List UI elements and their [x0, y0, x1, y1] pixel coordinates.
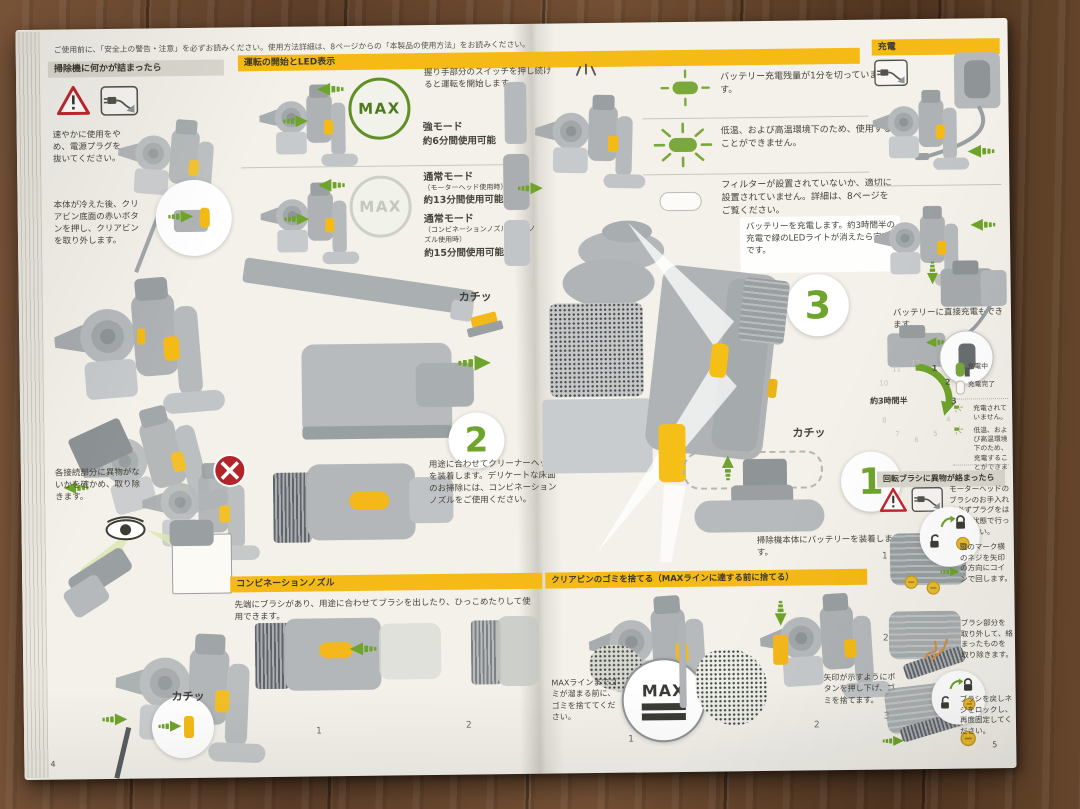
- nozzle-partial: [504, 220, 531, 266]
- legend-separator: [952, 398, 1008, 400]
- nozzle-slider-yellow: [349, 492, 389, 510]
- battery-clip2: [899, 325, 925, 338]
- figure-number: 1: [316, 726, 322, 736]
- charge-time-label: 約3時間半: [870, 395, 930, 407]
- section-title-combi: コンビネーションノズル: [230, 573, 542, 593]
- brushbar-bristles: [273, 473, 312, 543]
- legend-charged: 充電完了: [956, 380, 1008, 395]
- green-arrow-up-icon: [721, 455, 734, 481]
- green-arrow-icon: [457, 354, 491, 371]
- warning-triangle-icon: [56, 85, 90, 115]
- legend-charging: 充電中: [956, 362, 1008, 377]
- green-arrow-down-icon: [926, 261, 938, 285]
- manual-booklet-spread: ご使用前に、「安全上の警告・注意」を必ずお読みください。使用方法詳細は、8ページ…: [15, 18, 1016, 780]
- green-arrow-icon: [317, 178, 345, 192]
- click-sfx-label: カチッ: [459, 288, 492, 304]
- charge-divider: [873, 184, 1001, 187]
- led-blink-icon: [954, 426, 970, 440]
- photo-of-manual-on-floor: ご使用前に、「安全上の警告・注意」を必ずお読みください。使用方法詳細は、8ページ…: [0, 0, 1080, 809]
- green-arrow-icon: [882, 735, 904, 746]
- combi-ghost-tail: [379, 623, 442, 680]
- green-arrow-icon: [284, 213, 310, 226]
- clog-step2-text: 本体が冷えた後、クリアビン底面の赤いボタンを押し、クリアビンを取り外します。: [54, 199, 143, 248]
- coin-icon: [904, 575, 918, 589]
- clock-digit: 7: [895, 430, 900, 438]
- green-arrow-icon: [349, 642, 377, 656]
- combi-body-retracted: [497, 616, 540, 687]
- green-arrow-icon: [316, 82, 344, 96]
- led-blinking-icon: [651, 122, 716, 169]
- brush-step3-text: ブラシを戻しネジをロックし、再度固定してください。: [960, 694, 1015, 737]
- max-line-bar: [642, 712, 686, 720]
- eye-icon: [103, 515, 147, 542]
- clock-digit: 1: [932, 364, 938, 373]
- temperature-warning-text: 低温、および高温環境下のため、使用することができません。: [721, 123, 893, 151]
- falling-dust: [695, 649, 768, 726]
- clock-digit: 12: [911, 359, 920, 367]
- led-solid-icon: [656, 68, 714, 109]
- led-off-icon: [659, 192, 701, 212]
- page-number-right: 5: [992, 740, 997, 749]
- clock-digit: 5: [933, 430, 938, 438]
- max-label: MAX: [359, 197, 402, 216]
- battery-pack-clip: [952, 260, 978, 274]
- strong-mode-time: 約6分間使用可能: [423, 134, 553, 149]
- status-divider: [643, 116, 869, 120]
- green-arrow-icon: [970, 218, 996, 231]
- clock-digit: 10: [879, 379, 888, 387]
- green-arrow-icon: [940, 567, 960, 577]
- latch-detail: [184, 716, 194, 738]
- crevice-tool-partial: [504, 82, 527, 144]
- warning-triangle-icon: [879, 487, 907, 512]
- clock-digit: 11: [892, 365, 901, 373]
- bin-release-latch-yellow: [658, 424, 686, 482]
- clog-step3-text: 各接続部分に異物がないかを確かめ、取り除きます。: [55, 467, 147, 504]
- filter-warning-text: フィルターが設置されていないか、適切に設置されていません。詳細は、8ページをご覧…: [721, 177, 893, 217]
- legend-not-charging: 充電されていません。: [954, 404, 1008, 423]
- max-line-callout: MAX: [621, 658, 706, 743]
- vacuum-illustration: [533, 72, 652, 211]
- legend-label: 充電中: [968, 362, 989, 371]
- status-divider: [643, 172, 869, 176]
- clearbin-latch-yellow: [137, 329, 145, 345]
- max-mode-indicator: MAX: [348, 77, 411, 140]
- red-bin-button: [200, 208, 210, 228]
- lock-open-icon: [939, 695, 953, 710]
- figure-number: 1: [628, 735, 634, 745]
- bin-door-bar: [679, 622, 687, 708]
- brush-step2-text: ブラシ部分を取り外して、絡まったものを取り除きます。: [961, 618, 1014, 661]
- prohibited-x-icon: [213, 453, 247, 487]
- rotate-arrow: [948, 678, 963, 691]
- green-arrow-icon: [158, 720, 182, 732]
- green-arrow-down-icon: [774, 600, 787, 626]
- figure-number: 2: [466, 721, 472, 731]
- cleaner-head-soleplate: [302, 425, 452, 440]
- clock-digit: 6: [914, 436, 919, 444]
- brush-step-number: 2: [883, 633, 889, 643]
- coin-icon: [926, 581, 940, 595]
- click-sfx-label: カチッ: [172, 688, 205, 704]
- clock-digit: 2: [945, 378, 951, 387]
- rotate-arrow: [939, 515, 955, 529]
- bin-button-yellow: [773, 635, 788, 665]
- brush-step-number: 1: [882, 551, 888, 561]
- green-arrow-icon: [102, 713, 128, 726]
- led-off-icon: [956, 381, 965, 395]
- click-sfx-label: カチッ: [792, 424, 825, 440]
- battery-low-text: バッテリー充電残量が1分を切っています。: [720, 69, 888, 97]
- figure-number: 2: [814, 720, 820, 730]
- green-arrow-icon: [168, 210, 194, 223]
- max-mode-indicator-off: MAX: [349, 175, 412, 238]
- section-title-clog: 掃除機に何かが詰まったら: [48, 60, 224, 78]
- green-arrow-icon: [967, 144, 995, 158]
- led-green-icon: [956, 363, 965, 377]
- battery-attach-text: 掃除機本体にバッテリーを装着します。: [757, 533, 893, 559]
- battery-base-slab: [694, 499, 824, 533]
- clock-digit: 4: [946, 416, 951, 424]
- green-arrow-icon: [283, 115, 309, 128]
- led-blink-icon: [954, 404, 970, 418]
- brush-step1-text: 鍵のマーク横のネジを矢印の方向にコインで回します。: [960, 542, 1013, 585]
- legend-label: 充電されていません。: [973, 404, 1008, 423]
- clog-step1-text: 速やかに使用をやめ、電源プラグを抜いてください。: [53, 129, 121, 166]
- magnified-button-callout: [155, 179, 232, 256]
- legend-label: 充電完了: [968, 380, 995, 390]
- vacuum-illustration: [872, 74, 973, 185]
- bin-cap-piece: [169, 520, 213, 547]
- tangled-debris: [919, 631, 953, 665]
- charger-unit-small: [980, 270, 1006, 306]
- step-number-text: 2: [464, 420, 488, 460]
- bin-fig1-text: MAXラインまでゴミが溜まる前に、ゴミを捨ててください。: [551, 677, 622, 723]
- lock-open-icon: [928, 533, 943, 549]
- max-label: MAX: [358, 99, 401, 118]
- page-number-left: 4: [50, 760, 55, 769]
- green-arrow-icon: [517, 182, 543, 195]
- clock-digit: 8: [882, 416, 887, 424]
